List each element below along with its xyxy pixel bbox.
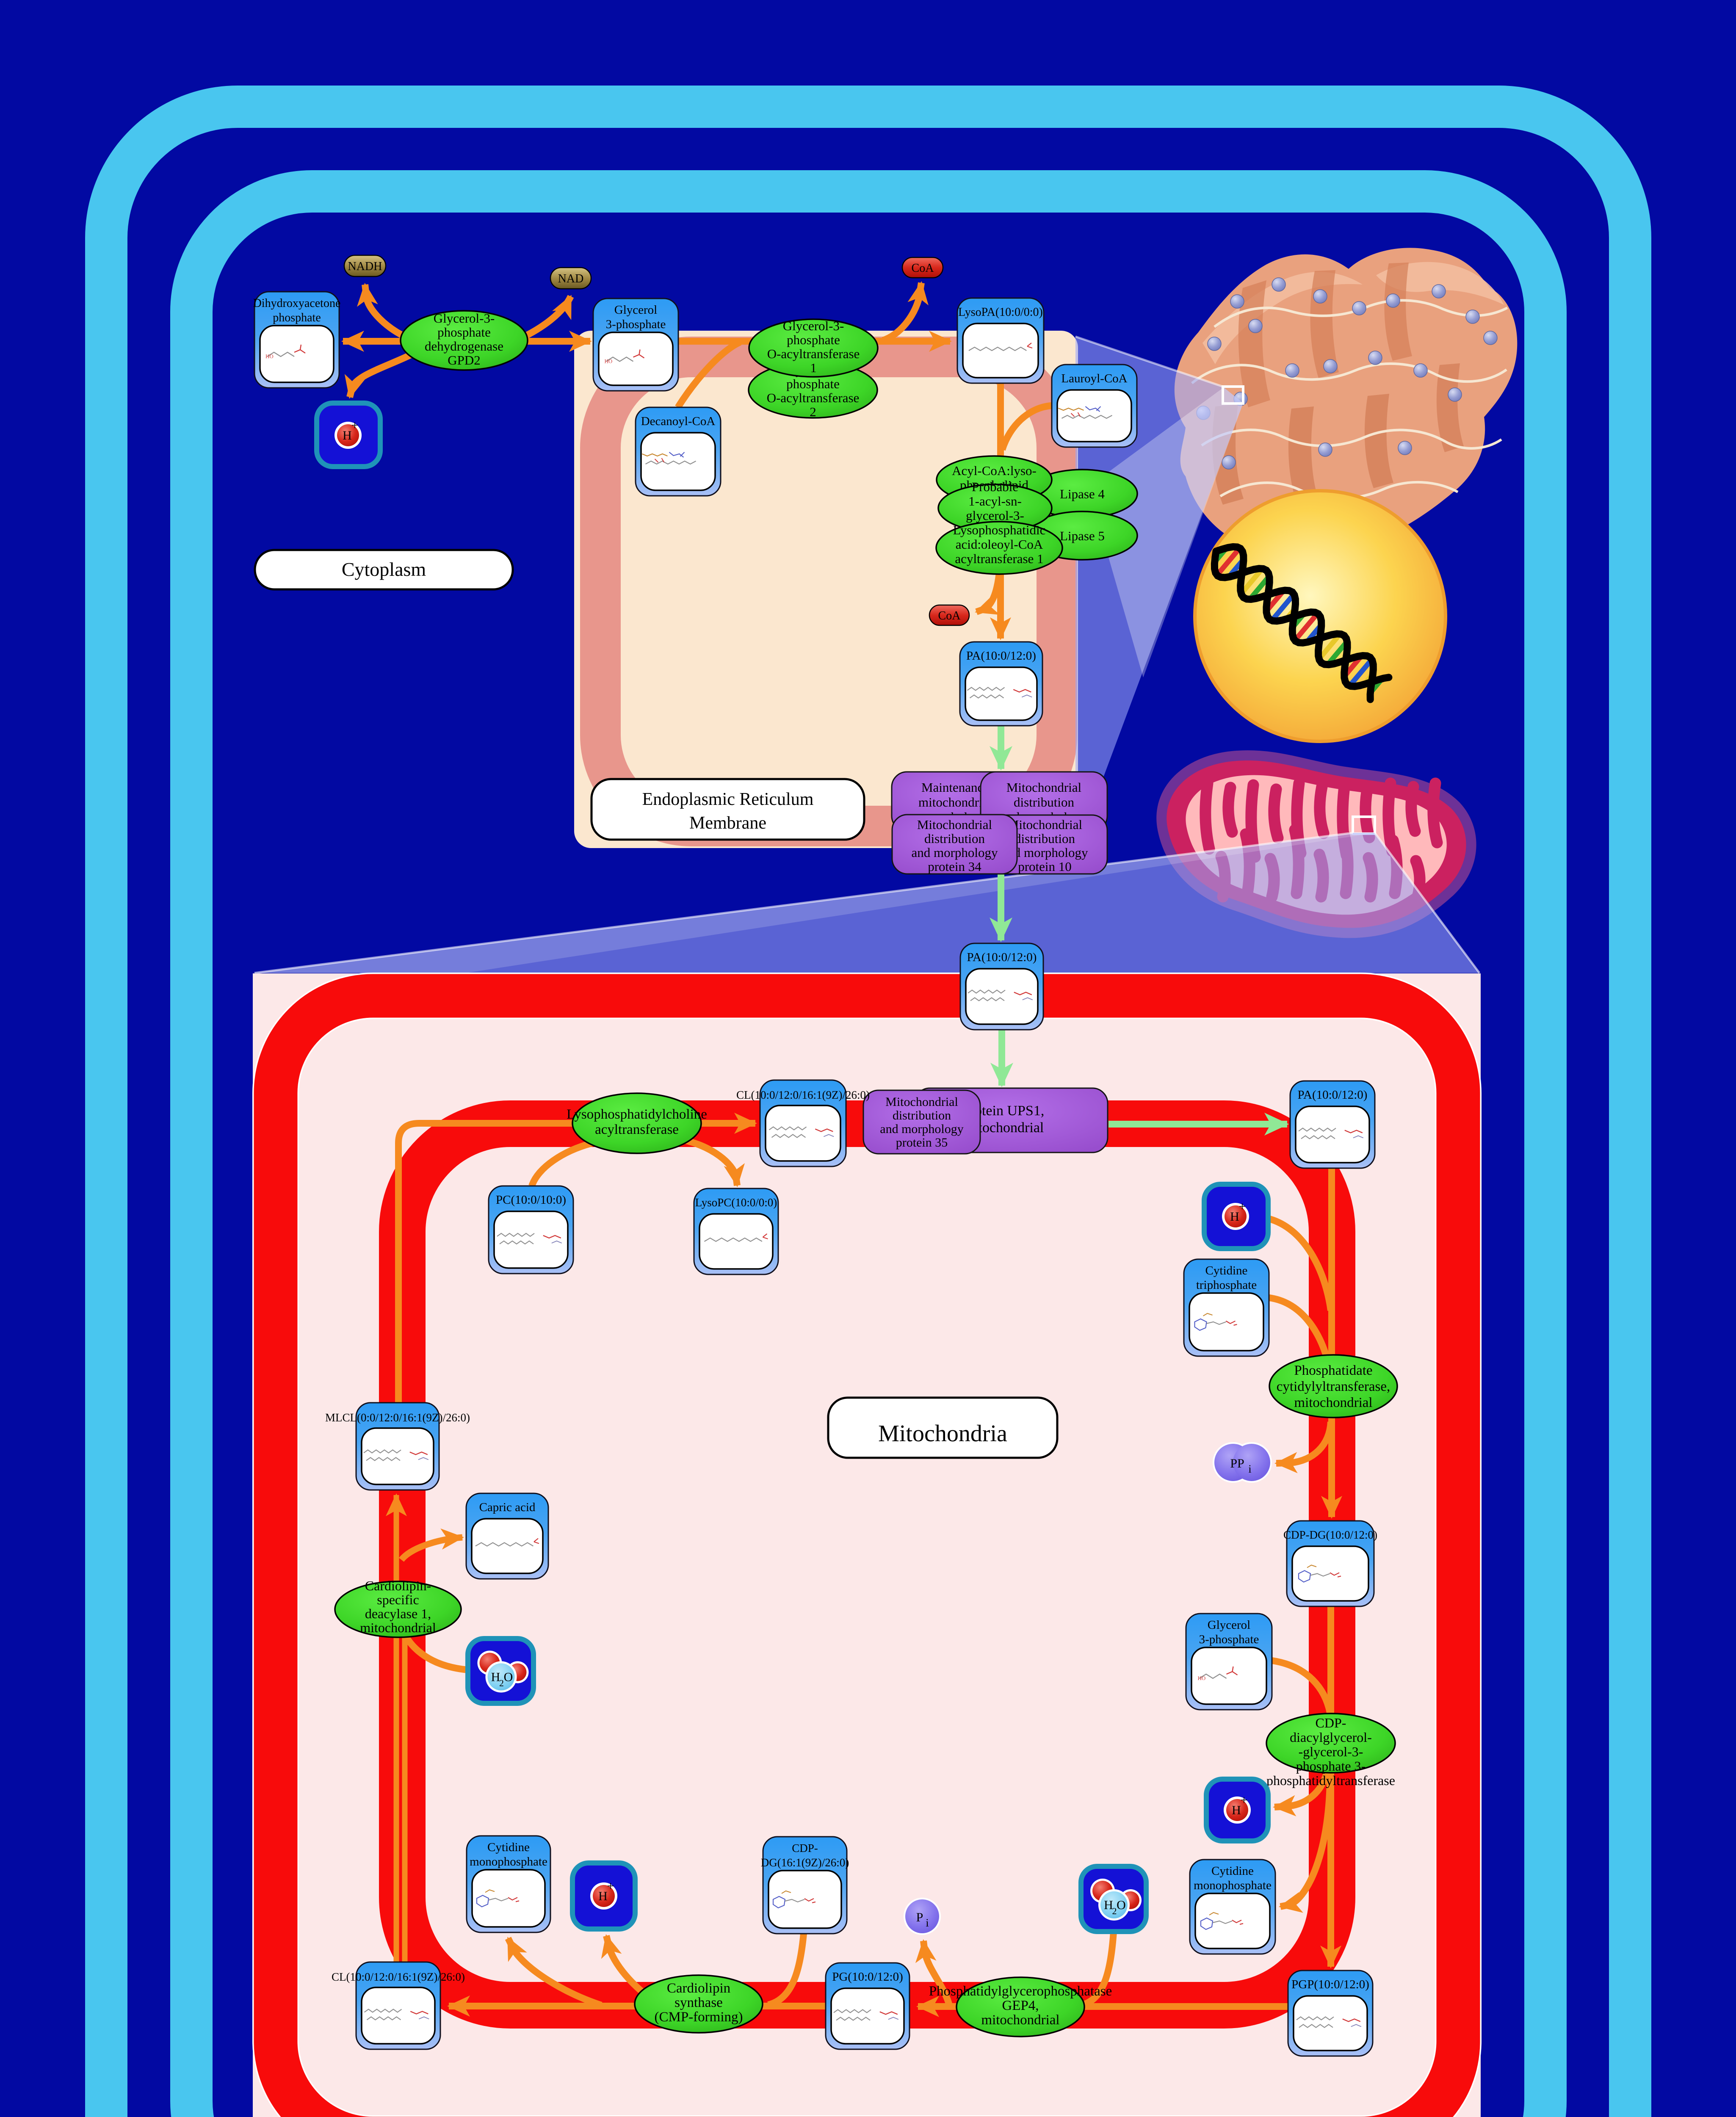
svg-text:deacylase 1,: deacylase 1, bbox=[365, 1606, 431, 1621]
svg-text:Glycerol-3-: Glycerol-3- bbox=[434, 311, 495, 326]
svg-text:3-phosphate: 3-phosphate bbox=[1199, 1633, 1259, 1646]
svg-text:Mitochondrial: Mitochondrial bbox=[1006, 780, 1081, 795]
svg-text:phosphate: phosphate bbox=[273, 311, 321, 324]
svg-text:Lipase 5: Lipase 5 bbox=[1060, 528, 1105, 543]
svg-text:PG(10:0/12:0): PG(10:0/12:0) bbox=[832, 1970, 903, 1984]
svg-text:monophosphate: monophosphate bbox=[470, 1855, 547, 1868]
svg-text:CDP-: CDP- bbox=[792, 1842, 818, 1854]
svg-text:1: 1 bbox=[810, 360, 817, 375]
svg-text:distribution: distribution bbox=[893, 1108, 951, 1122]
svg-text:NADH: NADH bbox=[348, 260, 382, 273]
svg-text:Glycerol: Glycerol bbox=[614, 303, 657, 317]
svg-text:MLCL(0:0/12:0/16:1(9Z)/26:0): MLCL(0:0/12:0/16:1(9Z)/26:0) bbox=[325, 1411, 470, 1424]
svg-text:Endoplasmic Reticulum: Endoplasmic Reticulum bbox=[642, 790, 814, 809]
svg-text:specific: specific bbox=[377, 1592, 419, 1607]
svg-text:LysoPA(10:0/0:0): LysoPA(10:0/0:0) bbox=[958, 306, 1043, 319]
svg-text:Mitochondrial: Mitochondrial bbox=[885, 1095, 958, 1109]
svg-text:2: 2 bbox=[810, 404, 816, 419]
svg-text:mitochondrial: mitochondrial bbox=[360, 1620, 436, 1635]
svg-text:3-phosphate: 3-phosphate bbox=[606, 318, 666, 331]
svg-text:protein 35: protein 35 bbox=[896, 1136, 948, 1150]
svg-text:DG(16:1(9Z)/26:0): DG(16:1(9Z)/26:0) bbox=[761, 1856, 849, 1869]
svg-text:Membrane: Membrane bbox=[689, 813, 766, 833]
svg-text:Lauroyl-CoA: Lauroyl-CoA bbox=[1061, 372, 1127, 385]
svg-text:+: + bbox=[351, 418, 359, 432]
svg-text:H: H bbox=[343, 428, 352, 442]
svg-text:O-acyltransferase: O-acyltransferase bbox=[767, 346, 860, 361]
svg-text:phosphate: phosphate bbox=[787, 332, 840, 347]
svg-text:Phosphatidylglycerophosphatase: Phosphatidylglycerophosphatase bbox=[929, 1984, 1112, 1999]
svg-text:HO: HO bbox=[1198, 1675, 1206, 1681]
svg-text:dehydrogenase: dehydrogenase bbox=[425, 339, 503, 354]
svg-text:+: + bbox=[607, 1879, 614, 1893]
svg-text:Cytoplasm: Cytoplasm bbox=[342, 558, 426, 580]
svg-text:Lysophosphatidic: Lysophosphatidic bbox=[953, 522, 1046, 537]
svg-text:Mitochondria: Mitochondria bbox=[878, 1421, 1007, 1447]
svg-text:LysoPC(10:0/0:0): LysoPC(10:0/0:0) bbox=[695, 1196, 777, 1209]
svg-text:acyltransferase: acyltransferase bbox=[595, 1122, 679, 1137]
svg-text:Phosphatidate: Phosphatidate bbox=[1294, 1363, 1372, 1378]
svg-text:Probable: Probable bbox=[972, 479, 1018, 494]
svg-text:1-acyl-sn-: 1-acyl-sn- bbox=[968, 494, 1022, 509]
svg-text:glycerol-3-: glycerol-3- bbox=[966, 508, 1024, 523]
svg-text:-glycerol-3-: -glycerol-3- bbox=[1299, 1744, 1363, 1759]
svg-text:protein 10: protein 10 bbox=[1018, 859, 1072, 874]
svg-text:PC(10:0/10:0): PC(10:0/10:0) bbox=[496, 1193, 566, 1207]
svg-text:PA(10:0/12:0): PA(10:0/12:0) bbox=[1298, 1088, 1368, 1102]
svg-text:mitochondrial: mitochondrial bbox=[981, 2012, 1059, 2028]
svg-text:and morphology: and morphology bbox=[911, 845, 998, 860]
svg-text:CoA: CoA bbox=[912, 262, 934, 275]
svg-text:Cytidine: Cytidine bbox=[1205, 1264, 1248, 1277]
svg-text:Cytidine: Cytidine bbox=[1211, 1864, 1254, 1878]
svg-text:mitochondrial: mitochondrial bbox=[1294, 1395, 1372, 1410]
svg-text:GEP4,: GEP4, bbox=[1002, 1998, 1039, 2013]
svg-text:GPD2: GPD2 bbox=[448, 353, 481, 368]
svg-text:O-acyltransferase: O-acyltransferase bbox=[767, 390, 860, 405]
svg-text:P: P bbox=[916, 1910, 923, 1924]
svg-text:H: H bbox=[1230, 1210, 1239, 1224]
svg-text:Cardiolipin: Cardiolipin bbox=[667, 1981, 730, 1996]
svg-text:Cytidine: Cytidine bbox=[487, 1841, 530, 1854]
svg-text:distribution: distribution bbox=[1014, 795, 1074, 810]
svg-text:H: H bbox=[1232, 1803, 1241, 1817]
svg-text:Cardiolipin-: Cardiolipin- bbox=[365, 1578, 431, 1593]
svg-text:2: 2 bbox=[499, 1678, 504, 1689]
svg-text:i: i bbox=[926, 1917, 929, 1929]
svg-text:+: + bbox=[1239, 1199, 1246, 1213]
svg-text:NAD: NAD bbox=[558, 272, 584, 285]
svg-text:Lysophosphatidylcholine: Lysophosphatidylcholine bbox=[567, 1107, 707, 1122]
svg-text:CDP-DG(10:0/12:0): CDP-DG(10:0/12:0) bbox=[1283, 1528, 1377, 1541]
svg-text:CL(10:0/12:0/16:1(9Z)/26:0): CL(10:0/12:0/16:1(9Z)/26:0) bbox=[736, 1089, 870, 1101]
svg-text:(CMP-forming): (CMP-forming) bbox=[655, 2009, 743, 2025]
svg-text:Mitochondrial: Mitochondrial bbox=[1007, 817, 1082, 832]
svg-text:H: H bbox=[598, 1889, 608, 1903]
svg-text:Acyl-CoA:lyso-: Acyl-CoA:lyso- bbox=[952, 463, 1037, 478]
svg-text:distribution: distribution bbox=[924, 831, 985, 846]
svg-text:phosphate: phosphate bbox=[786, 376, 840, 391]
svg-text:phosphate: phosphate bbox=[437, 325, 491, 340]
svg-text:phosphate 3-: phosphate 3- bbox=[1296, 1758, 1366, 1774]
svg-text:protein 34: protein 34 bbox=[928, 859, 981, 874]
svg-text:CL(10:0/12:0/16:1(9Z)/26:0): CL(10:0/12:0/16:1(9Z)/26:0) bbox=[332, 1971, 465, 1983]
svg-text:HO: HO bbox=[605, 358, 613, 365]
svg-text:Lipase 4: Lipase 4 bbox=[1060, 486, 1105, 501]
svg-text:synthase: synthase bbox=[674, 1995, 723, 2010]
svg-text:Dihydroxyacetone: Dihydroxyacetone bbox=[253, 297, 341, 310]
svg-text:Glycerol: Glycerol bbox=[1208, 1618, 1250, 1632]
svg-text:Capric acid: Capric acid bbox=[479, 1501, 536, 1514]
svg-text:acyltransferase 1: acyltransferase 1 bbox=[955, 551, 1043, 566]
svg-text:i: i bbox=[1248, 1463, 1251, 1475]
svg-text:monophosphate: monophosphate bbox=[1194, 1879, 1272, 1892]
svg-text:cytidylyltransferase,: cytidylyltransferase, bbox=[1277, 1379, 1390, 1394]
svg-text:PP: PP bbox=[1230, 1456, 1244, 1470]
svg-text:+: + bbox=[1241, 1793, 1248, 1807]
svg-text:Mitochondrial: Mitochondrial bbox=[917, 817, 992, 832]
svg-text:O: O bbox=[1117, 1898, 1126, 1912]
svg-text:Glycerol-3-: Glycerol-3- bbox=[783, 318, 844, 333]
svg-text:2: 2 bbox=[1112, 1906, 1117, 1916]
svg-text:O: O bbox=[504, 1670, 513, 1684]
svg-text:HO: HO bbox=[265, 353, 274, 359]
svg-text:Decanoyl-CoA: Decanoyl-CoA bbox=[641, 415, 716, 428]
svg-text:distribution: distribution bbox=[1015, 831, 1075, 846]
svg-text:CDP-: CDP- bbox=[1316, 1715, 1346, 1730]
svg-text:Maintenance: Maintenance bbox=[921, 780, 989, 795]
svg-text:triphosphate: triphosphate bbox=[1196, 1278, 1257, 1292]
svg-text:PGP(10:0/12:0): PGP(10:0/12:0) bbox=[1291, 1978, 1369, 1991]
svg-text:diacylglycerol-: diacylglycerol- bbox=[1290, 1730, 1372, 1745]
svg-text:phosphatidyltransferase: phosphatidyltransferase bbox=[1266, 1773, 1395, 1788]
svg-text:acid:oleoyl-CoA: acid:oleoyl-CoA bbox=[956, 537, 1043, 552]
svg-text:CoA: CoA bbox=[938, 609, 961, 622]
svg-text:and morphology: and morphology bbox=[880, 1122, 963, 1136]
svg-text:PA(10:0/12:0): PA(10:0/12:0) bbox=[967, 951, 1037, 964]
svg-text:PA(10:0/12:0): PA(10:0/12:0) bbox=[966, 649, 1036, 663]
